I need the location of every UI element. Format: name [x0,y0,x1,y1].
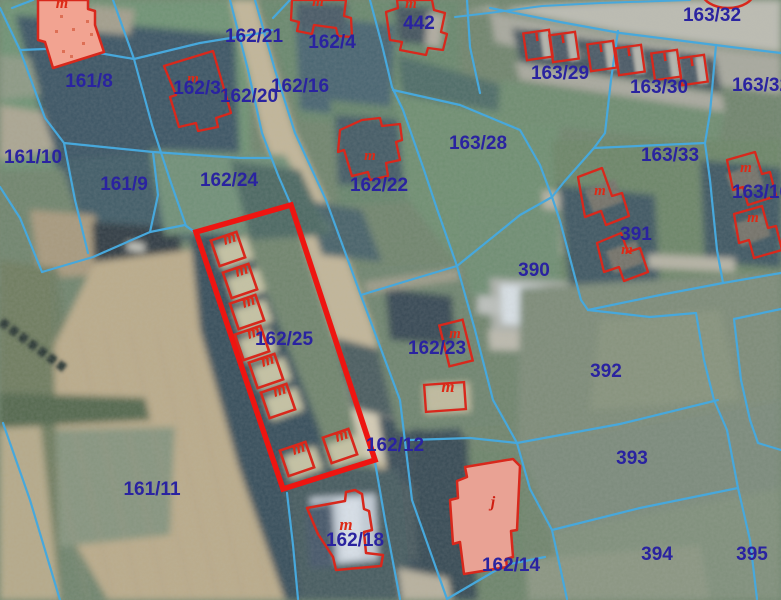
svg-text:163/33: 163/33 [641,145,699,166]
svg-text:161/11: 161/11 [123,479,180,500]
svg-text:163/10: 163/10 [732,182,781,203]
svg-text:m: m [56,0,68,12]
svg-text:162/12: 162/12 [366,435,424,456]
svg-text:162/22: 162/22 [350,175,408,196]
svg-text:m: m [740,160,752,176]
svg-text:163/28: 163/28 [449,133,507,154]
svg-text:163/30: 163/30 [630,77,688,98]
svg-text:161/9: 161/9 [100,174,148,195]
svg-text:m: m [364,148,376,164]
svg-text:391: 391 [620,224,652,245]
svg-text:162/24: 162/24 [200,170,259,191]
svg-text:162/21: 162/21 [225,26,284,47]
svg-text:162/18: 162/18 [326,530,384,551]
svg-text:394: 394 [641,544,673,565]
svg-text:162/23: 162/23 [408,338,466,359]
svg-text:m: m [405,0,417,12]
svg-text:163/29: 163/29 [531,63,589,84]
svg-text:m: m [312,0,324,10]
svg-text:162/25: 162/25 [255,329,314,350]
svg-text:162/4: 162/4 [308,32,356,53]
svg-text:442: 442 [403,13,435,34]
svg-text:161/8: 161/8 [65,71,113,92]
svg-text:161/10: 161/10 [4,147,62,168]
svg-text:163/32: 163/32 [732,75,781,96]
svg-text:163/32: 163/32 [683,5,741,26]
svg-text:390: 390 [518,260,550,281]
svg-text:162/20: 162/20 [220,86,278,107]
svg-text:395: 395 [736,544,768,565]
svg-text:392: 392 [590,361,622,382]
svg-text:162/16: 162/16 [271,76,329,97]
svg-text:162/14: 162/14 [482,555,541,576]
svg-text:m: m [441,377,454,396]
svg-text:m: m [594,183,606,199]
svg-text:393: 393 [616,448,648,469]
svg-text:m: m [747,210,759,226]
svg-text:162/3: 162/3 [173,78,221,99]
